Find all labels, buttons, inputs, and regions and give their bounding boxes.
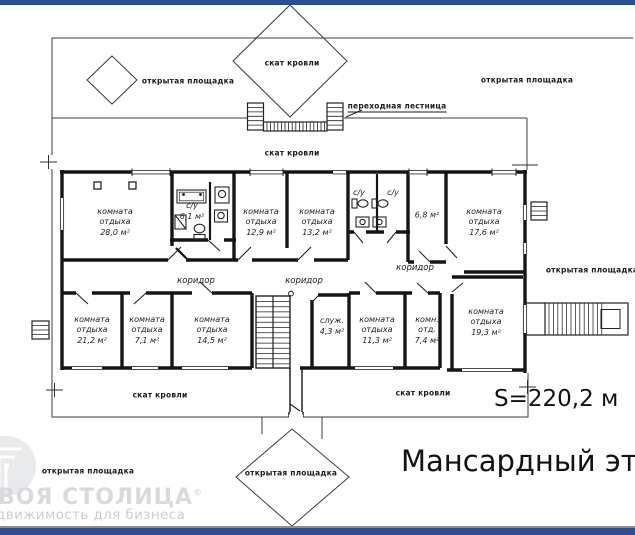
door-leaf-bold bbox=[176, 248, 187, 259]
floor-plan-page: открытая площадка скат кровли открытая п… bbox=[0, 0, 635, 535]
room-label-7-1: комната отдыха7,1 м² bbox=[125, 315, 169, 345]
room-label-sluzh-4-3: служ.4,3 м² bbox=[315, 316, 349, 337]
room-label-14-5: комната отдыха14,5 м² bbox=[183, 315, 241, 345]
exit-door-gap bbox=[289, 415, 303, 420]
bottom-accent-bar bbox=[0, 528, 635, 535]
room-label-12-9: комната отдыха12,9 м² bbox=[232, 207, 290, 237]
right-stair-icon bbox=[525, 303, 628, 335]
central-stair-icon bbox=[256, 291, 293, 368]
room-label-7-4: комн. отд.7,4 м² bbox=[413, 315, 441, 345]
room-label-19-3: комната отдыха19,3 м² bbox=[457, 307, 515, 337]
open-area-label-right: открытая площадка bbox=[546, 266, 635, 275]
roof-slope-label-upper: скат кровли bbox=[265, 149, 320, 158]
roof-slope-label-diamond: скат кровли bbox=[265, 59, 320, 68]
watermark-tagline: движимость для бизнеса bbox=[0, 507, 185, 523]
toilet-icons-pair bbox=[352, 199, 388, 227]
registered-trademark-icon: ® bbox=[193, 489, 203, 499]
vestibule-walls bbox=[289, 368, 303, 417]
room-label-17-6: комната отдыха17,6 м² bbox=[455, 207, 513, 237]
corridor-label-1: коридор bbox=[177, 276, 215, 286]
room-label-su-6-1: с/у6,1 м² bbox=[175, 201, 209, 222]
roof-slope-label-bottom-right: скат кровли bbox=[396, 389, 451, 398]
total-area-text: S=220,2 м bbox=[494, 386, 618, 412]
toilet-icon-main bbox=[194, 224, 205, 239]
corridor-label-3: коридор bbox=[396, 263, 434, 273]
open-area-label-diamond: открытая площадка bbox=[245, 469, 337, 478]
room-label-13-2: комната отдыха13,2 м² bbox=[288, 207, 346, 237]
room-label-11-3: комната отдыха11,3 м² bbox=[352, 315, 402, 345]
sink-icons bbox=[215, 187, 230, 222]
room-label-su-left: с/у bbox=[349, 188, 369, 198]
floor-title: Мансардный этаж bbox=[401, 444, 635, 478]
room-label-28-0: комната отдыха28,0 м² bbox=[86, 207, 144, 237]
room-label-su-right: с/у bbox=[383, 188, 403, 198]
corridor-label-2: коридор bbox=[285, 276, 323, 286]
room-label-21-2: комната отдыха21,2 м² bbox=[63, 315, 121, 345]
open-area-label-top-left: открытая площадка bbox=[142, 77, 234, 86]
open-area-label-top-right: открытая площадка bbox=[481, 76, 573, 85]
open-area-label-bottom-left: открытая площадка bbox=[42, 467, 134, 476]
ceiling-hatch-icons bbox=[94, 182, 136, 189]
room-label-6-8: 6,8 м² bbox=[407, 210, 447, 221]
roof-slope-label-bottom-left: скат кровли bbox=[133, 391, 188, 400]
transition-stair-label: переходная лестница bbox=[348, 102, 447, 113]
